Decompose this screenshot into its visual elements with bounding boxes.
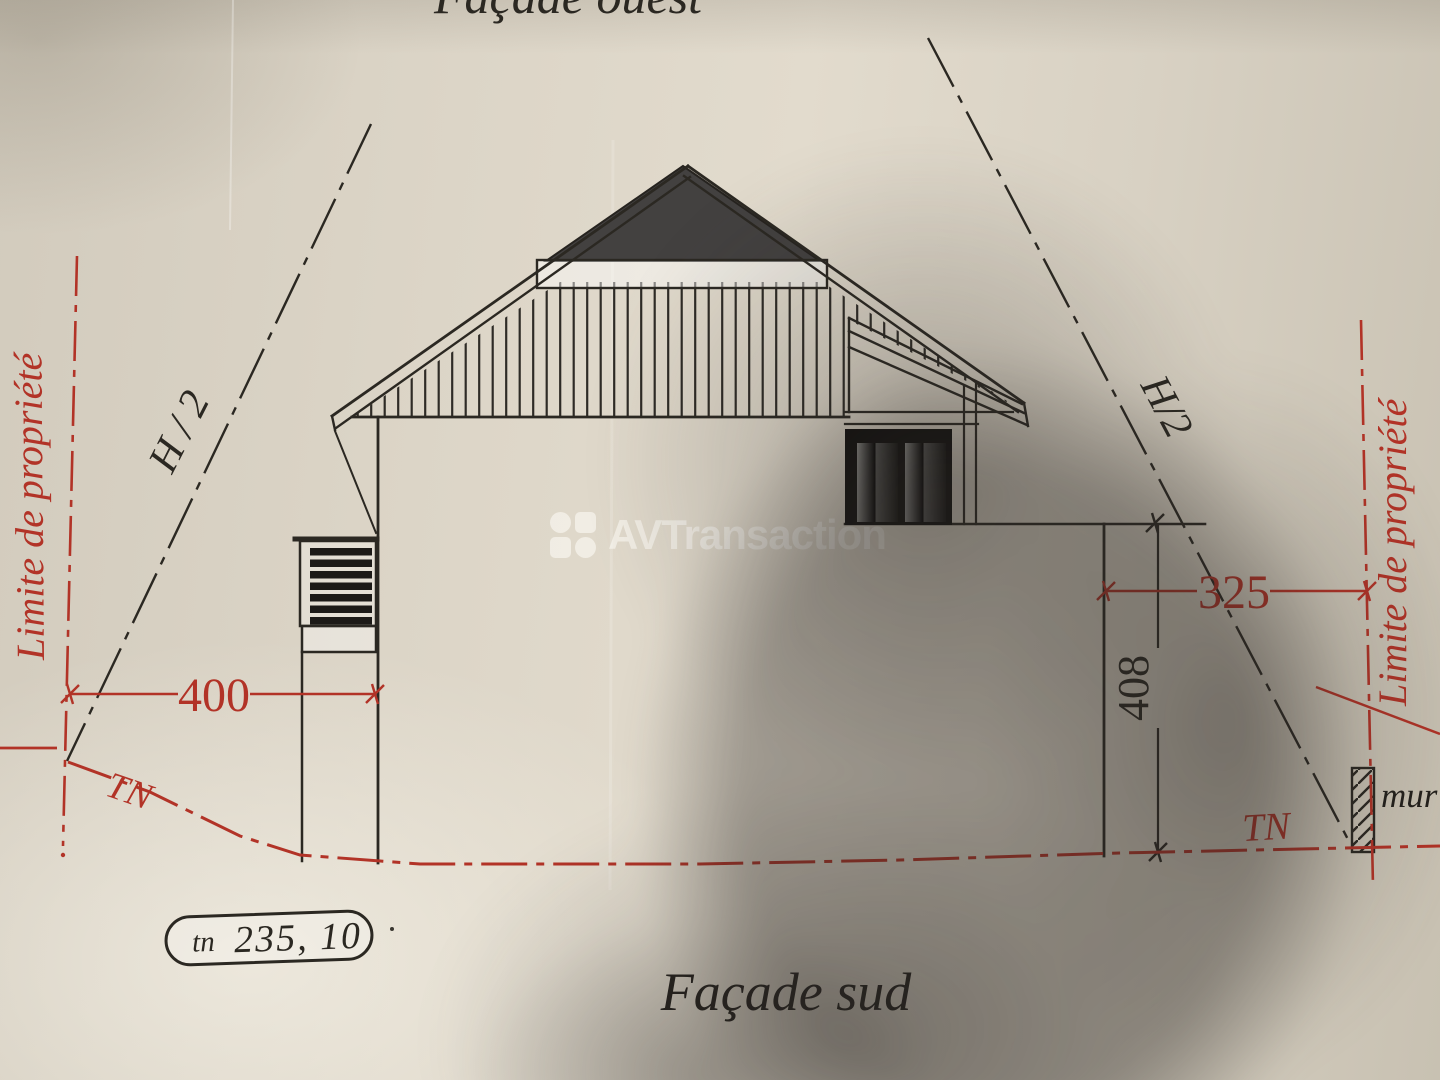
- title-facade-ouest: Façade ouest: [433, 0, 703, 24]
- dim-408-value: 408: [1109, 655, 1158, 721]
- tn-label-right: TN: [1241, 804, 1293, 850]
- property-limit-label-right: Limite de propriété: [1370, 396, 1415, 707]
- elevation-drawing: Façade ouest Façade sud Limite de propri…: [0, 0, 1440, 1080]
- mur-label: mur: [1381, 776, 1438, 815]
- subroof-line: [849, 331, 1024, 413]
- louver-sill: [302, 626, 376, 652]
- photographed-elevation-plan: Façade ouest Façade sud Limite de propri…: [0, 0, 1440, 1080]
- black-annotations: [67, 38, 1374, 862]
- soffit-line: [335, 431, 376, 533]
- badge-prefix: tn: [192, 926, 216, 959]
- title-facade-sud: Façade sud: [660, 962, 912, 1022]
- h2-line-left: [67, 124, 371, 761]
- ridge-band: [537, 260, 827, 288]
- gable-siding: [352, 282, 1018, 417]
- roof-hip-face: [546, 166, 820, 261]
- ink-dot: [390, 927, 394, 931]
- paper-crease: [230, 0, 233, 230]
- badge-value: 235, 10: [233, 915, 362, 961]
- fascia-left-cap: [332, 416, 335, 430]
- property-limit-label-left: Limite de propriété: [5, 350, 53, 661]
- dim-400-value: 400: [178, 669, 250, 722]
- property-limit-line-left: [63, 256, 77, 846]
- balcony-door: [845, 429, 952, 525]
- tn-terrain-line: [68, 762, 1440, 864]
- h2-line-right: [928, 38, 1353, 849]
- ground-level-badge: tn 235, 10: [165, 910, 373, 965]
- tn-label-left: TN: [101, 765, 159, 819]
- h2-label-right: H/2: [1131, 367, 1202, 445]
- house-elevation: [295, 166, 1205, 863]
- dim-325-value: 325: [1198, 566, 1270, 619]
- subroof-line: [849, 318, 1022, 404]
- louver-vent: [295, 539, 377, 861]
